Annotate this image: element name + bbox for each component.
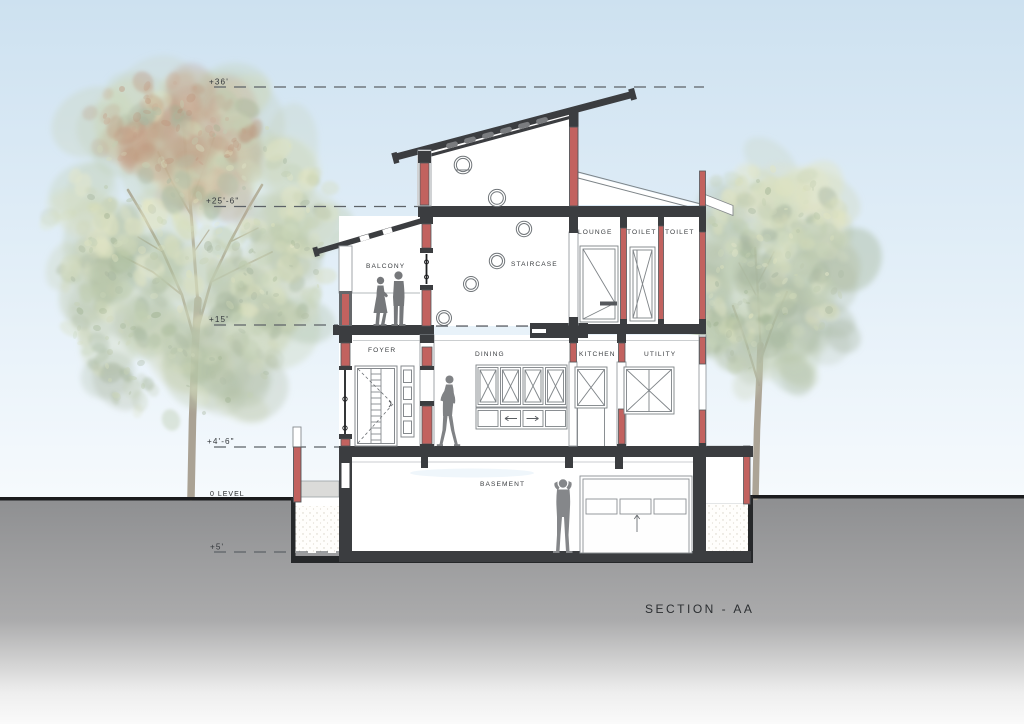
svg-text:DINING: DINING: [475, 351, 505, 358]
svg-text:+25'-6": +25'-6": [206, 197, 239, 206]
svg-text:UTILITY: UTILITY: [644, 351, 676, 358]
svg-text:SECTION - AA: SECTION - AA: [645, 602, 754, 616]
svg-text:LOUNGE: LOUNGE: [578, 229, 612, 236]
svg-text:BASEMENT: BASEMENT: [480, 481, 525, 488]
svg-text:KITCHEN: KITCHEN: [579, 351, 616, 358]
svg-text:+36': +36': [209, 78, 229, 87]
svg-text:+5': +5': [210, 543, 224, 552]
svg-text:BALCONY: BALCONY: [366, 263, 405, 270]
svg-text:+15': +15': [209, 315, 229, 324]
svg-text:STAIRCASE: STAIRCASE: [511, 261, 558, 268]
svg-text:FOYER: FOYER: [368, 347, 396, 354]
svg-text:+4'-6": +4'-6": [207, 437, 235, 446]
svg-text:TOILET: TOILET: [627, 229, 657, 236]
svg-text:TOILET: TOILET: [665, 229, 695, 236]
svg-text:0 LEVEL: 0 LEVEL: [210, 491, 245, 498]
